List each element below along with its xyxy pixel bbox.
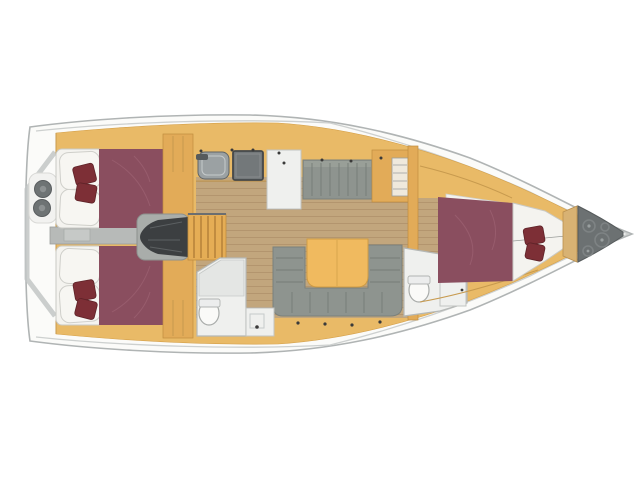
red-cushion	[75, 182, 98, 203]
winch-icon	[34, 200, 51, 217]
sink-icon	[196, 152, 229, 179]
pillow	[59, 248, 101, 285]
anchor-locker	[578, 206, 623, 262]
stove-icon	[233, 151, 263, 180]
winch-icon	[35, 181, 52, 198]
wardrobe	[163, 249, 193, 338]
red-cushion	[523, 225, 546, 245]
shelf-unit	[392, 158, 408, 196]
faucet-icon	[196, 154, 208, 160]
chain-locker-bulkhead	[563, 206, 577, 262]
toilet-tank	[199, 299, 220, 307]
handle-dot	[283, 162, 286, 165]
v-berth	[438, 197, 513, 283]
salon-seating	[273, 239, 402, 316]
bow-area	[563, 206, 623, 262]
toilet-tank	[408, 276, 430, 284]
red-cushion	[73, 279, 97, 301]
aft-head	[197, 258, 246, 336]
floor-plan-drawing	[0, 0, 640, 479]
red-cushion	[525, 242, 546, 261]
floor-hatch	[64, 229, 90, 241]
washbasin-unit	[246, 308, 274, 336]
companionway	[137, 214, 226, 260]
yacht-layout-plan	[0, 0, 640, 479]
refrigerator-counter	[267, 150, 301, 209]
